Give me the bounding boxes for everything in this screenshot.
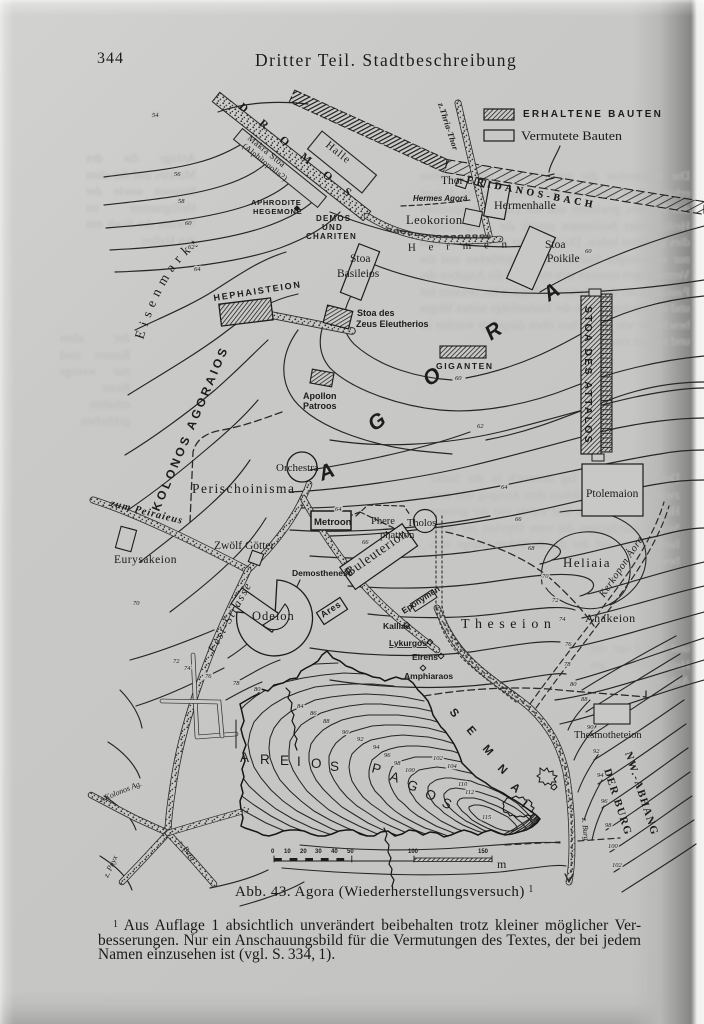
svg-text:Hermenhalle: Hermenhalle	[494, 198, 556, 212]
svg-text:68: 68	[528, 545, 535, 552]
svg-text:Anakeion: Anakeion	[585, 611, 636, 625]
svg-text:O: O	[423, 786, 439, 804]
svg-text:A: A	[508, 781, 522, 796]
svg-text:Hermes Agorá: Hermes Agorá	[413, 194, 468, 203]
svg-text:Orchestra: Orchestra	[276, 462, 319, 474]
svg-text:90: 90	[587, 724, 594, 731]
svg-text:z.Kolonos Ag.: z.Kolonos Ag.	[97, 779, 143, 804]
svg-text:78: 78	[564, 661, 571, 668]
svg-text:Stoa des: Stoa des	[357, 308, 395, 318]
svg-text:62: 62	[188, 244, 195, 251]
svg-text:96: 96	[384, 752, 391, 759]
svg-text:Apollon: Apollon	[303, 391, 337, 401]
svg-text:10: 10	[284, 849, 291, 855]
svg-text:150: 150	[478, 849, 489, 855]
svg-text:84: 84	[297, 703, 304, 710]
svg-text:Lykurgos: Lykurgos	[389, 638, 427, 648]
svg-text:CHARITEN: CHARITEN	[306, 232, 357, 241]
svg-text:ERHALTENE BAUTEN: ERHALTENE BAUTEN	[523, 109, 663, 120]
svg-text:Heliaia: Heliaia	[563, 555, 611, 570]
svg-text:72: 72	[552, 597, 559, 604]
svg-text:100: 100	[405, 767, 416, 774]
svg-text:64: 64	[194, 266, 201, 273]
svg-text:58: 58	[178, 198, 185, 205]
svg-text:Amphiaraos: Amphiaraos	[404, 671, 453, 681]
svg-text:74: 74	[559, 616, 566, 623]
svg-text:Basileios: Basileios	[337, 268, 380, 280]
svg-text:Zwölf Götter: Zwölf Götter	[214, 540, 275, 552]
svg-text:Leokorion: Leokorion	[406, 213, 463, 227]
svg-text:110: 110	[458, 781, 468, 788]
svg-text:E: E	[280, 753, 289, 768]
svg-text:Ptolemaion: Ptolemaion	[586, 488, 639, 500]
svg-text:A: A	[538, 279, 564, 307]
svg-text:Stoa: Stoa	[350, 253, 370, 265]
svg-text:88: 88	[581, 696, 588, 703]
svg-text:M: M	[480, 743, 495, 758]
svg-text:102: 102	[433, 755, 444, 762]
svg-text:Thor: Thor	[441, 175, 464, 187]
svg-text:Vermutete Bauten: Vermutete Bauten	[521, 128, 623, 143]
svg-text:62: 62	[477, 423, 484, 430]
svg-text:78: 78	[233, 680, 240, 687]
svg-text:Stoa: Stoa	[545, 239, 565, 251]
svg-text:z. Pnyx: z. Pnyx	[101, 854, 120, 880]
svg-text:R: R	[481, 317, 507, 345]
svg-text:Demostheneso: Demostheneso	[292, 568, 353, 578]
svg-text:76: 76	[565, 641, 572, 648]
svg-text:A: A	[240, 750, 249, 765]
svg-text:Poikile: Poikile	[547, 253, 580, 265]
svg-text:20: 20	[300, 849, 307, 855]
svg-text:86: 86	[310, 710, 317, 717]
svg-text:N: N	[495, 763, 509, 777]
svg-text:66: 66	[362, 539, 369, 546]
svg-text:GIGANTEN: GIGANTEN	[436, 361, 494, 371]
svg-text:STOA DES ATTALOS: STOA DES ATTALOS	[582, 306, 594, 445]
svg-text:92: 92	[593, 748, 600, 755]
svg-text:R: R	[260, 752, 270, 767]
svg-text:Eurysakeion: Eurysakeion	[114, 554, 177, 566]
svg-text:54: 54	[152, 112, 159, 119]
svg-text:60: 60	[185, 220, 192, 227]
svg-text:88: 88	[323, 718, 330, 725]
svg-text:Tholos: Tholos	[407, 518, 436, 529]
svg-text:P: P	[370, 760, 382, 777]
svg-text:DEMOS: DEMOS	[316, 214, 351, 223]
svg-text:94: 94	[597, 772, 604, 779]
svg-text:m: m	[497, 857, 507, 871]
svg-text:94: 94	[373, 744, 380, 751]
svg-text:30: 30	[315, 849, 322, 855]
svg-text:G: G	[405, 777, 420, 795]
svg-text:60: 60	[455, 375, 462, 382]
svg-text:64: 64	[335, 506, 342, 513]
svg-text:Patroos: Patroos	[303, 401, 337, 411]
svg-text:Metroon: Metroon	[314, 517, 352, 528]
svg-text:50: 50	[347, 849, 354, 855]
svg-text:104: 104	[447, 763, 458, 770]
svg-text:100: 100	[608, 843, 619, 850]
svg-text:Perischoinisma: Perischoinisma	[192, 481, 296, 496]
svg-text:98: 98	[394, 760, 401, 767]
svg-text:S: S	[330, 759, 339, 774]
svg-text:Theseion: Theseion	[461, 617, 556, 632]
svg-text:O: O	[311, 756, 322, 771]
svg-text:Odeion: Odeion	[252, 609, 295, 623]
svg-text:40: 40	[331, 849, 338, 855]
svg-text:z. Burg: z. Burg	[580, 816, 591, 841]
svg-text:76: 76	[205, 673, 212, 680]
svg-text:112: 112	[465, 789, 475, 796]
svg-text:E: E	[464, 724, 478, 738]
svg-text:I: I	[297, 754, 301, 769]
svg-text:80: 80	[254, 686, 261, 693]
svg-text:70: 70	[133, 600, 140, 607]
svg-text:UND: UND	[322, 223, 343, 232]
svg-text:74: 74	[184, 665, 191, 672]
svg-text:64: 64	[501, 484, 508, 491]
svg-text:Thesmotheteion: Thesmotheteion	[574, 730, 642, 741]
svg-text:115: 115	[482, 814, 492, 821]
svg-text:0: 0	[271, 849, 275, 855]
svg-text:z. Burg: z. Burg	[176, 838, 198, 862]
svg-text:H e r m e n: H e r m e n	[408, 238, 513, 254]
svg-text:Zeus Eleutherios: Zeus Eleutherios	[356, 319, 429, 329]
svg-text:S: S	[447, 706, 461, 720]
svg-text:92: 92	[357, 736, 364, 743]
svg-text:56: 56	[174, 171, 181, 178]
svg-text:APHRODITE: APHRODITE	[251, 198, 301, 207]
svg-text:Phere: Phere	[371, 516, 395, 527]
svg-text:96: 96	[601, 798, 608, 805]
svg-text:80: 80	[570, 681, 577, 688]
svg-text:102: 102	[612, 862, 623, 869]
svg-text:98: 98	[605, 822, 612, 829]
svg-text:100: 100	[408, 849, 419, 855]
svg-text:G: G	[364, 408, 391, 436]
svg-text:60: 60	[585, 248, 592, 255]
svg-text:Eirens: Eirens	[412, 652, 438, 662]
svg-text:70: 70	[542, 573, 549, 580]
svg-text:90: 90	[342, 729, 349, 736]
svg-text:72: 72	[173, 658, 180, 665]
svg-text:66: 66	[515, 516, 522, 523]
